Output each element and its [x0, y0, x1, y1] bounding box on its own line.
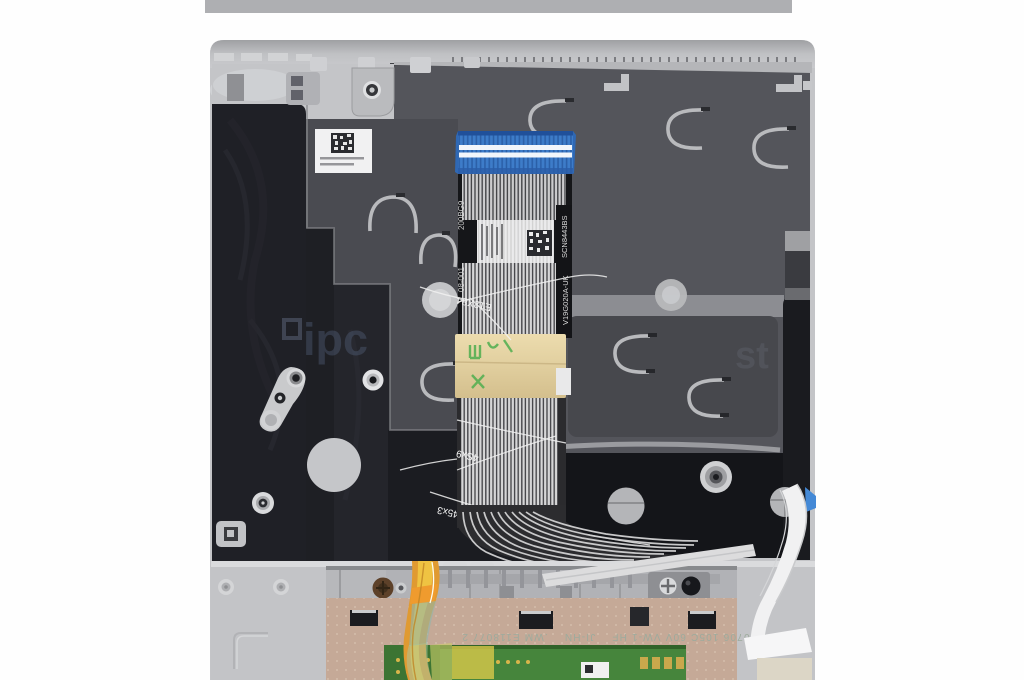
svg-text:V19G020A-UK: V19G020A-UK [561, 275, 570, 325]
svg-text:ipc: ipc [303, 314, 368, 365]
svg-text:st: st [735, 335, 769, 377]
svg-text:SCN8443BS: SCN8443BS [560, 215, 569, 258]
svg-text:08-001: 08-001 [457, 267, 466, 292]
svg-text:200BG9: 200BG9 [457, 200, 466, 230]
